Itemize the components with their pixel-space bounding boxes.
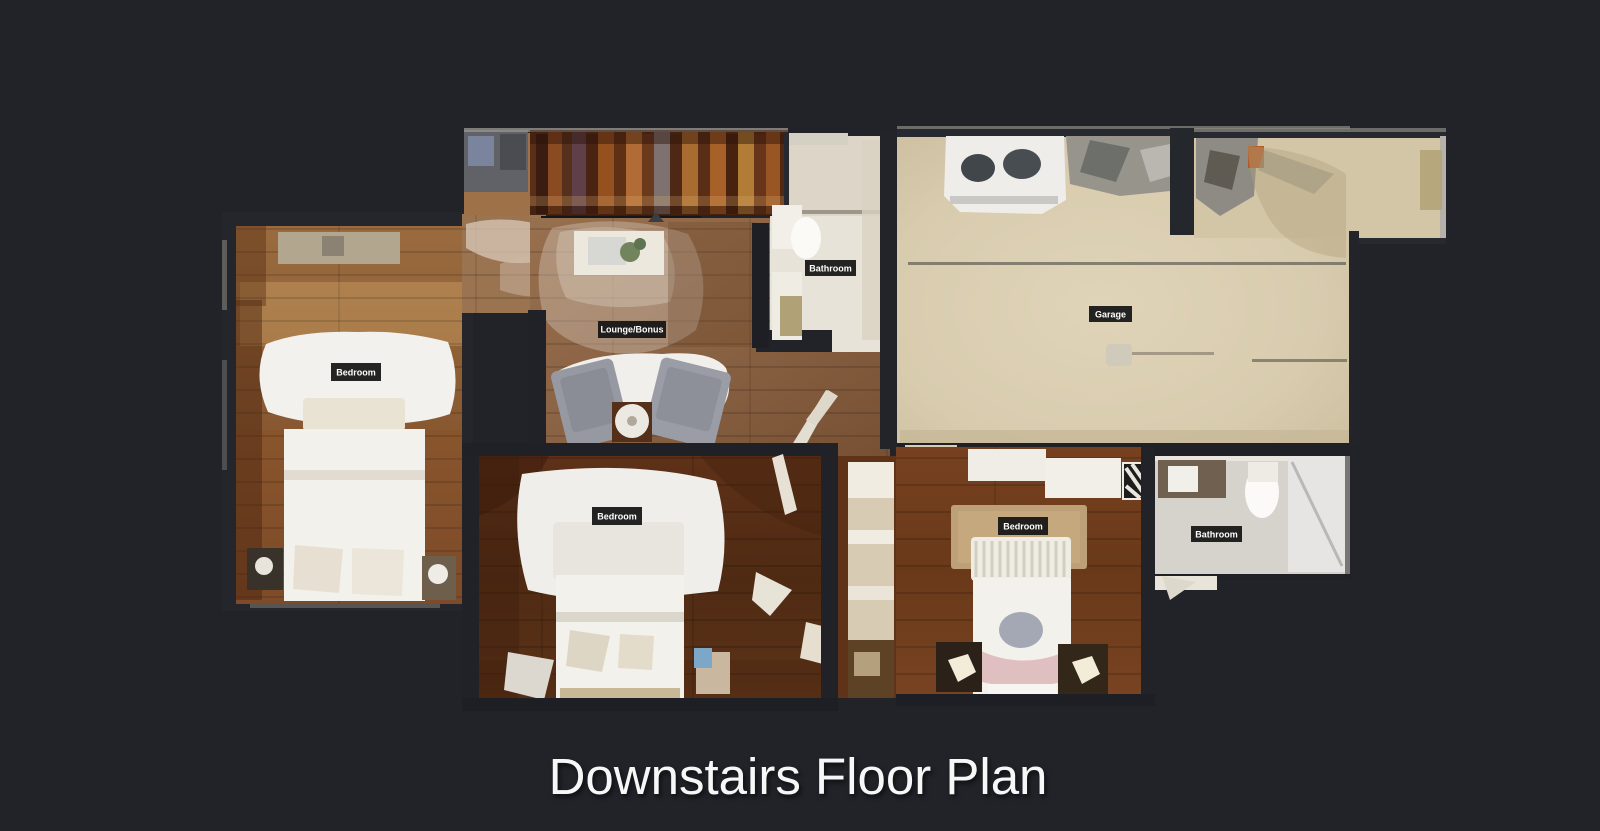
svg-text:Bathroom: Bathroom: [809, 263, 852, 273]
svg-text:Bedroom: Bedroom: [597, 511, 637, 521]
svg-text:Bathroom: Bathroom: [1195, 529, 1238, 539]
svg-text:Bedroom: Bedroom: [1003, 521, 1043, 531]
svg-text:Bedroom: Bedroom: [336, 367, 376, 377]
svg-text:Lounge/Bonus: Lounge/Bonus: [601, 325, 664, 335]
svg-text:Downstairs Floor Plan: Downstairs Floor Plan: [549, 748, 1048, 805]
svg-text:Garage: Garage: [1095, 309, 1126, 319]
